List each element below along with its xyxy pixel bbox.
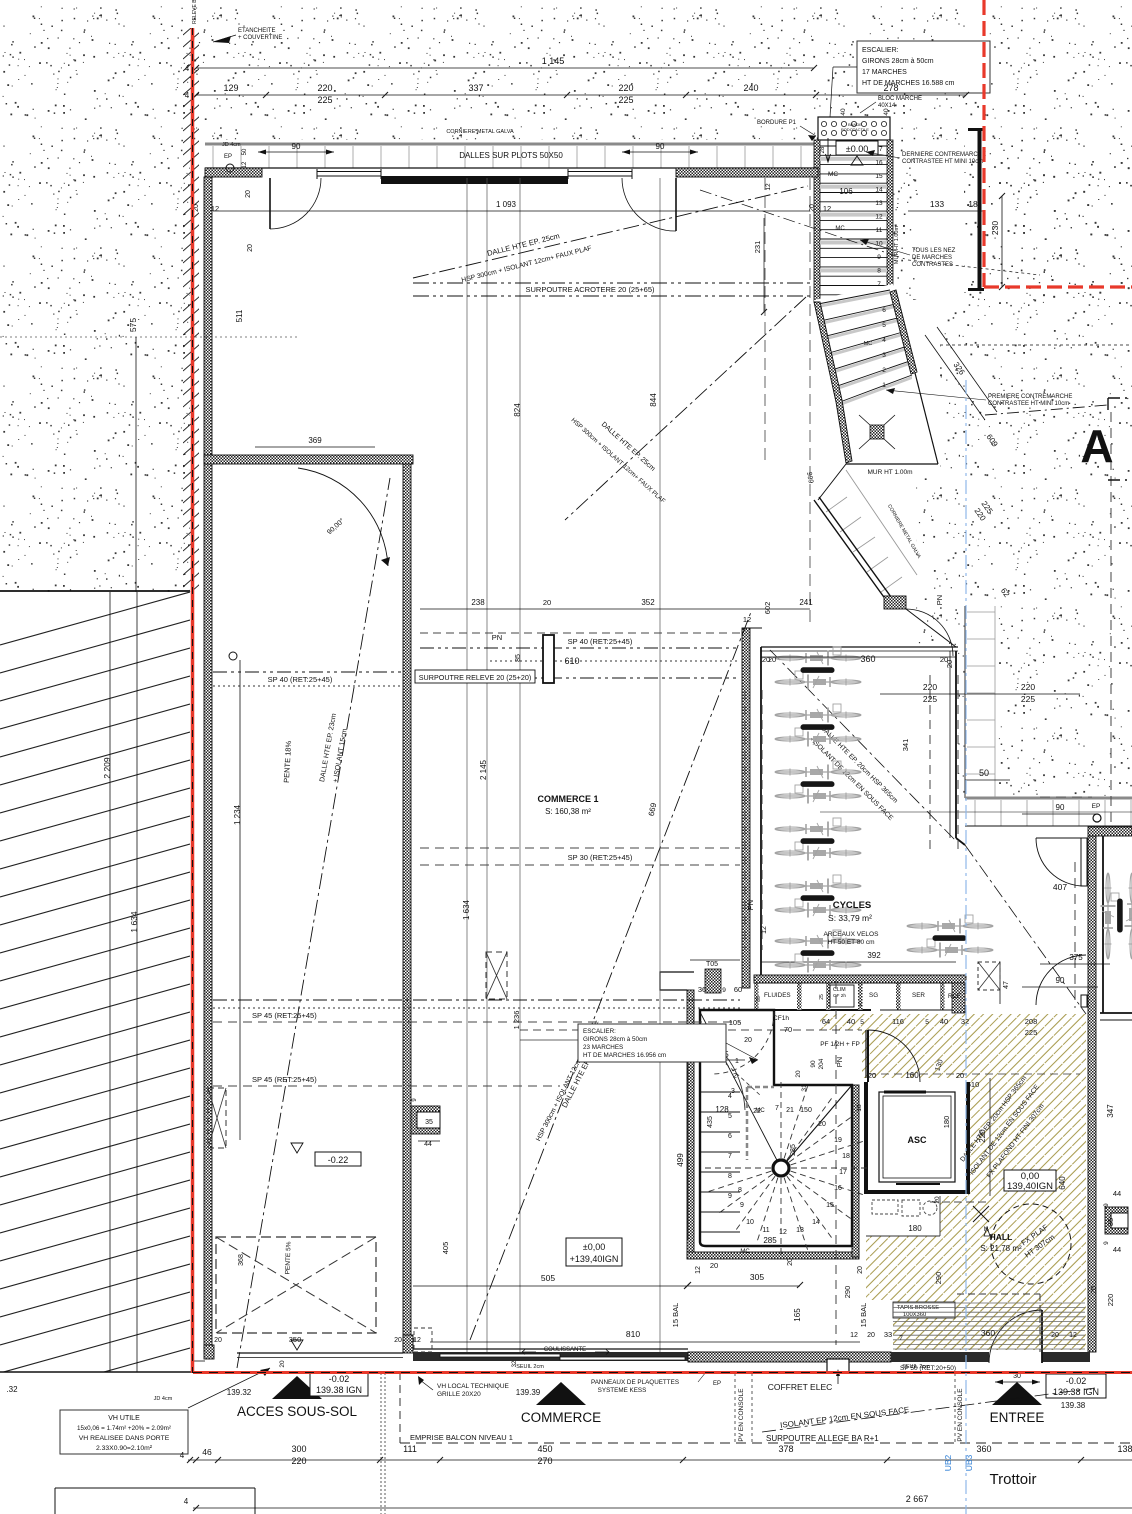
svg-text:1 634: 1 634 [129,911,139,933]
svg-text:12: 12 [695,1266,702,1274]
svg-text:499: 499 [676,1153,685,1167]
svg-text:220: 220 [978,1129,987,1143]
svg-text:3: 3 [882,352,886,359]
svg-text:208: 208 [1025,1017,1038,1026]
svg-text:9: 9 [722,987,726,994]
svg-text:CONTRASTEE HT MINI 10cm: CONTRASTEE HT MINI 10cm [988,401,1069,407]
svg-text:ARCEAUX VELOS: ARCEAUX VELOS [824,931,880,938]
svg-text:-0.22: -0.22 [328,1155,349,1165]
svg-text:9: 9 [740,1202,744,1209]
svg-text:4: 4 [185,91,190,100]
svg-text:12: 12 [761,926,768,934]
svg-text:20: 20 [245,190,252,198]
svg-text:MC: MC [755,1108,765,1114]
svg-text:JD 4cm: JD 4cm [154,1396,173,1402]
svg-text:SURPOUTRE RELEVE 20 (25+20): SURPOUTRE RELEVE 20 (25+20) [419,673,531,682]
svg-text:278: 278 [883,83,898,93]
svg-text:602: 602 [763,602,772,615]
svg-text:PN: PN [935,595,944,605]
svg-text:1 634: 1 634 [462,899,471,920]
svg-text:40X14: 40X14 [878,103,896,109]
svg-text:Trottoir: Trottoir [990,1471,1037,1488]
svg-text:90: 90 [656,142,665,151]
svg-text:220: 220 [1106,1294,1115,1307]
svg-text:220: 220 [618,83,633,93]
svg-text:241: 241 [799,598,813,607]
svg-text:305: 305 [750,1272,764,1282]
svg-text:31: 31 [801,1084,808,1092]
svg-text:CONTRASTEE HT MINI 10cm: CONTRASTEE HT MINI 10cm [902,159,983,165]
svg-text:20: 20 [787,1258,794,1266]
svg-text:2 209: 2 209 [102,757,112,779]
svg-text:225: 225 [618,95,633,105]
svg-text:CYCLES: CYCLES [833,900,872,911]
svg-text:44: 44 [1113,1245,1121,1254]
svg-text:20: 20 [214,1337,222,1344]
svg-text:20: 20 [744,1037,752,1044]
svg-text:378: 378 [778,1444,793,1454]
svg-text:15 BAL: 15 BAL [859,1303,868,1328]
svg-text:ASC: ASC [907,1135,927,1145]
svg-text:1: 1 [882,382,886,389]
svg-text:70: 70 [784,1025,792,1034]
svg-text:JD 4cm: JD 4cm [222,142,241,148]
svg-text:220: 220 [1021,682,1035,692]
svg-text:.32: .32 [6,1385,18,1394]
svg-text:12: 12 [765,183,772,191]
svg-text:HT 50 ET 80 cm: HT 50 ET 80 cm [827,939,874,946]
svg-text:270: 270 [537,1456,552,1466]
svg-text:9: 9 [1103,1203,1110,1207]
svg-text:285: 285 [790,1144,797,1156]
svg-text:1: 1 [735,1058,739,1065]
svg-text:5: 5 [860,1019,864,1026]
svg-text:8: 8 [738,1187,742,1194]
svg-text:COMMERCE: COMMERCE [521,1410,601,1425]
svg-text:9: 9 [728,1193,732,1200]
svg-text:ACCES SOUS-SOL: ACCES SOUS-SOL [237,1404,358,1419]
svg-text:7: 7 [899,1335,903,1342]
svg-text:21: 21 [786,1107,794,1114]
svg-text:HT DE MARCHES 16.588 cm: HT DE MARCHES 16.588 cm [862,80,955,87]
svg-text:±0.00: ±0.00 [846,144,868,154]
svg-text:ESCALIER:: ESCALIER: [583,1028,616,1035]
svg-text:220: 220 [923,682,937,692]
svg-text:360: 360 [981,1328,995,1338]
svg-text:139.38 IGN: 139.38 IGN [316,1385,362,1395]
svg-text:4: 4 [185,64,190,73]
svg-text:20: 20 [945,660,954,668]
svg-text:GIRONS 28cm à 50cm: GIRONS 28cm à 50cm [862,58,934,65]
svg-text:360: 360 [860,654,875,664]
svg-text:44: 44 [424,1141,432,1148]
svg-text:12: 12 [1069,1332,1077,1339]
svg-text:ENTREE: ENTREE [990,1410,1045,1425]
svg-text:+ COUVERTINE: + COUVERTINE [238,35,282,41]
svg-text:392: 392 [867,951,881,960]
svg-text:225: 225 [923,694,937,704]
svg-text:1 093: 1 093 [496,200,517,209]
svg-text:-0.02: -0.02 [329,1374,350,1384]
svg-text:810: 810 [626,1329,640,1339]
svg-text:-0.02: -0.02 [1066,1376,1087,1386]
svg-text:GIRONS 28cm à 50cm: GIRONS 28cm à 50cm [583,1036,647,1043]
svg-text:CF 2h: CF 2h [833,993,846,999]
svg-text:PV EN CONSOLE: PV EN CONSOLE [957,1388,964,1442]
svg-text:16: 16 [834,1185,842,1192]
svg-text:SEUIL 2cm: SEUIL 2cm [516,1364,544,1370]
svg-text:231: 231 [753,241,762,254]
svg-text:35: 35 [756,996,762,1002]
svg-text:40: 40 [883,108,890,116]
svg-text:7: 7 [775,1105,779,1112]
svg-text:8: 8 [728,1173,732,1180]
svg-text:VH LOCAL TECHNIQUE: VH LOCAL TECHNIQUE [437,1383,510,1390]
svg-text:PREMIERE CONTREMARCHE: PREMIERE CONTREMARCHE [988,394,1072,400]
svg-text:SP 45 (RET:25+45): SP 45 (RET:25+45) [252,1075,317,1084]
svg-text:MC: MC [864,341,873,347]
svg-text:2.33X0.90=2.10m²: 2.33X0.90=2.10m² [96,1445,153,1452]
svg-text:240: 240 [743,83,758,93]
svg-text:PF 1/2H + FP: PF 1/2H + FP [820,1041,860,1048]
svg-text:20: 20 [956,1071,964,1080]
svg-text:139.39: 139.39 [516,1388,541,1397]
svg-text:SURPOUTRE ACROTERE 20 (25+65): SURPOUTRE ACROTERE 20 (25+65) [526,285,656,294]
svg-text:PODOTACTILE: PODOTACTILE [841,127,869,132]
svg-text:RCE: RCE [948,994,961,1000]
svg-text:S: 21,78 m²: S: 21,78 m² [980,1244,1022,1253]
svg-text:VH REALISEE DANS PORTE: VH REALISEE DANS PORTE [79,1435,170,1442]
svg-text:±0,00: ±0,00 [583,1242,605,1252]
svg-text:225: 225 [317,95,332,105]
svg-text:7: 7 [728,1153,732,1160]
svg-text:MC: MC [828,171,838,178]
svg-text:18: 18 [856,1104,863,1112]
svg-text:SER: SER [912,992,925,999]
svg-text:90: 90 [1056,976,1065,985]
svg-text:17 MARCHES: 17 MARCHES [862,69,907,76]
svg-text:20: 20 [868,1071,876,1080]
svg-text:32: 32 [961,1017,969,1026]
svg-text:150: 150 [800,1107,812,1114]
svg-text:139.38: 139.38 [1061,1401,1086,1410]
svg-text:13: 13 [875,200,883,207]
svg-text:40: 40 [847,1017,855,1026]
svg-text:450: 450 [537,1444,552,1454]
svg-text:20: 20 [795,1070,802,1078]
svg-text:15: 15 [826,1202,834,1209]
svg-text:133: 133 [930,199,944,209]
svg-text:8: 8 [877,268,881,275]
svg-text:139.32: 139.32 [227,1388,252,1397]
svg-text:9: 9 [877,254,881,261]
svg-text:SURPOUTRE ALLEGE BA R+1: SURPOUTRE ALLEGE BA R+1 [766,1434,879,1443]
svg-text:375: 375 [1069,953,1083,962]
svg-text:105: 105 [729,1018,742,1027]
svg-text:SP 30 (RET:25+45): SP 30 (RET:25+45) [568,853,633,862]
svg-text:824: 824 [513,403,522,417]
svg-text:640: 640 [1058,1176,1067,1190]
svg-text:UB2: UB2 [943,1454,953,1471]
svg-text:20: 20 [818,1121,826,1128]
svg-text:SP 40 (RET:25+45): SP 40 (RET:25+45) [268,675,333,684]
svg-text:PV EN CONSOLE: PV EN CONSOLE [738,1388,745,1442]
svg-text:90: 90 [292,142,301,151]
svg-text:HALL: HALL [990,1232,1013,1242]
svg-text:20: 20 [279,1360,286,1368]
svg-text:BLOC MARCHE: BLOC MARCHE [878,96,922,102]
svg-text:160: 160 [905,1071,919,1080]
svg-text:25: 25 [819,994,825,1000]
svg-text:MUR HT 1.00m: MUR HT 1.00m [894,226,900,265]
svg-text:405: 405 [441,1242,450,1255]
svg-text:13: 13 [796,1227,804,1234]
svg-text:46: 46 [202,1447,212,1457]
svg-text:12: 12 [850,1332,858,1339]
svg-text:165: 165 [793,1308,802,1322]
svg-text:PN: PN [835,1057,844,1067]
svg-text:20: 20 [768,655,776,664]
svg-text:FLUIDES: FLUIDES [764,992,791,999]
svg-text:285: 285 [763,1236,777,1245]
svg-text:19: 19 [834,1137,842,1144]
svg-text:18: 18 [842,1153,850,1160]
svg-text:3: 3 [731,1088,735,1095]
svg-text:5: 5 [728,1113,732,1120]
svg-text:EP: EP [1092,803,1101,810]
svg-text:16: 16 [875,160,883,167]
svg-text:220: 220 [317,83,332,93]
svg-text:GRILLE 20X20: GRILLE 20X20 [437,1391,481,1398]
svg-text:12: 12 [779,1229,787,1236]
svg-text:15 BAL: 15 BAL [671,1303,680,1328]
svg-text:85: 85 [515,654,522,662]
svg-text:6: 6 [728,1133,732,1140]
svg-text:10: 10 [858,1001,864,1007]
svg-text:230: 230 [990,221,1000,235]
svg-text:COMMERCE 1: COMMERCE 1 [537,794,598,804]
svg-text:90: 90 [1056,803,1065,812]
svg-text:116: 116 [892,1017,904,1026]
svg-text:44: 44 [1113,1189,1121,1198]
svg-text:11: 11 [762,1227,769,1234]
svg-text:EMPRISE BALCON NIVEAU 1: EMPRISE BALCON NIVEAU 1 [410,1433,513,1442]
svg-text:HT DE MARCHES 16.956 cm: HT DE MARCHES 16.956 cm [583,1052,666,1059]
svg-text:610: 610 [564,656,579,666]
svg-text:50: 50 [979,768,989,778]
svg-text:20: 20 [1091,1286,1098,1294]
svg-text:575: 575 [128,318,138,332]
svg-text:VH UTILE: VH UTILE [108,1415,140,1422]
svg-text:DE MARCHES: DE MARCHES [912,255,952,261]
svg-text:EP: EP [224,154,232,160]
svg-text:35: 35 [425,1119,433,1126]
svg-text:COFFRET ELEC: COFFRET ELEC [768,1382,833,1392]
svg-text:30: 30 [1013,1373,1021,1380]
svg-text:106: 106 [839,187,853,196]
svg-text:SG: SG [869,992,878,999]
svg-text:1 145: 1 145 [542,56,565,66]
svg-text:505: 505 [541,1273,555,1283]
svg-text:MC: MC [835,226,845,232]
svg-text:40: 40 [940,1017,948,1026]
svg-text:12: 12 [875,214,883,221]
svg-text:36: 36 [698,985,706,994]
svg-text:47: 47 [1003,981,1010,989]
svg-text:4: 4 [882,337,886,344]
svg-text:10: 10 [746,1219,754,1226]
svg-text:14: 14 [875,187,883,194]
svg-text:347: 347 [1106,1104,1115,1118]
svg-text:844: 844 [649,393,658,407]
svg-text:368: 368 [238,1254,245,1266]
svg-text:341: 341 [901,739,910,752]
svg-text:A: A [1080,420,1113,472]
svg-text:ESCALIER:: ESCALIER: [862,47,899,54]
svg-text:18: 18 [968,199,978,209]
svg-text:SP 45 (RET:25+45): SP 45 (RET:25+45) [252,1011,317,1020]
svg-text:28: 28 [820,146,826,153]
svg-text:180: 180 [942,1116,951,1129]
svg-text:5: 5 [925,1019,929,1026]
svg-text:5: 5 [882,322,886,329]
svg-text:DALLES SUR PLOTS 50X50: DALLES SUR PLOTS 50X50 [459,151,563,160]
svg-text:1 236: 1 236 [512,1011,521,1030]
svg-text:RELEVE BE: RELEVE BE [192,0,198,24]
svg-text:290: 290 [934,1272,943,1285]
svg-text:12: 12 [211,204,219,213]
svg-text:4: 4 [184,1497,189,1506]
svg-text:64: 64 [822,1017,830,1026]
svg-text:PENTE 5%: PENTE 5% [284,1241,292,1274]
svg-text:PN: PN [746,900,755,910]
svg-text:225: 225 [1025,1028,1038,1037]
svg-text:50: 50 [242,148,248,155]
svg-text:2: 2 [882,367,886,374]
svg-text:510: 510 [967,1080,980,1089]
svg-text:350: 350 [289,1335,302,1344]
svg-text:290: 290 [843,1286,852,1299]
svg-text:12: 12 [242,161,248,168]
svg-text:12: 12 [823,204,831,213]
svg-text:15: 15 [875,173,883,180]
svg-text:PANNEAUX DE PLAQUETTES: PANNEAUX DE PLAQUETTES [591,1379,679,1386]
svg-text:15x0,06 = 1.74m² +20% = 2.09m²: 15x0,06 = 1.74m² +20% = 2.09m² [77,1425,171,1432]
svg-text:129: 129 [223,83,238,93]
svg-text:220: 220 [291,1456,306,1466]
svg-text:COULISSANTE: COULISSANTE [544,1347,586,1353]
svg-text:2 145: 2 145 [479,759,488,780]
svg-text:SP 50 (RET:20+50): SP 50 (RET:20+50) [900,1365,956,1372]
svg-text:MC: MC [740,1249,750,1255]
svg-text:CF1h: CF1h [773,1015,789,1022]
svg-text:360: 360 [976,1444,991,1454]
svg-text:33: 33 [884,1330,892,1339]
svg-text:20: 20 [809,204,816,212]
svg-text:138: 138 [1117,1444,1132,1454]
svg-text:2 667: 2 667 [906,1494,929,1504]
svg-text:40: 40 [840,108,847,116]
svg-text:TOUS LES NEZ: TOUS LES NEZ [912,248,956,254]
svg-text:20: 20 [247,244,254,252]
svg-text:139,40IGN: 139,40IGN [1007,1181,1053,1192]
svg-text:35: 35 [1106,1218,1115,1226]
svg-text:20: 20 [710,1261,718,1270]
svg-text:180: 180 [908,1224,922,1233]
svg-text:1 234: 1 234 [233,804,242,825]
svg-text:6: 6 [882,307,886,314]
svg-text:11: 11 [876,227,883,234]
svg-text:BORDURE P1: BORDURE P1 [757,120,797,126]
svg-text:369: 369 [308,436,322,445]
svg-text:20: 20 [867,1332,875,1339]
svg-text:225: 225 [1021,694,1035,704]
svg-text:9: 9 [1103,1241,1110,1245]
svg-text:14: 14 [812,1219,820,1226]
svg-text:12: 12 [743,615,751,624]
svg-text:SP 40 (RET:25+45): SP 40 (RET:25+45) [568,637,633,646]
svg-text:S: 160,38 m²: S: 160,38 m² [545,807,591,816]
svg-text:20: 20 [543,598,551,607]
svg-text:20: 20 [394,1337,402,1344]
svg-text:17: 17 [839,1169,847,1176]
svg-text:T05: T05 [706,961,718,968]
svg-text:20: 20 [857,1266,864,1274]
svg-text:CLIM: CLIM [833,987,846,993]
svg-text:111: 111 [403,1444,417,1454]
svg-text:SYSTEME KESS: SYSTEME KESS [598,1387,647,1394]
svg-text:ETANCHEITE: ETANCHEITE [238,28,276,34]
svg-text:DERNIERE CONTREMARCHE: DERNIERE CONTREMARCHE [902,152,986,158]
svg-text:204: 204 [818,1058,825,1069]
svg-text:238: 238 [471,598,485,607]
svg-text:23 MARCHES: 23 MARCHES [583,1044,623,1051]
svg-text:337: 337 [468,83,483,93]
svg-text:60: 60 [734,985,742,994]
svg-text:MUR HT 1.00m: MUR HT 1.00m [867,469,912,476]
svg-text:435: 435 [707,1116,714,1128]
svg-text:EP: EP [713,1381,721,1387]
svg-text:PN: PN [492,633,502,642]
svg-text:300: 300 [291,1444,306,1454]
svg-text:20: 20 [934,1196,941,1204]
svg-text:511: 511 [235,309,244,322]
svg-text:90: 90 [810,1060,817,1068]
svg-text:407: 407 [1053,882,1067,892]
svg-text:4: 4 [180,1451,185,1460]
svg-text:352: 352 [641,598,655,607]
svg-text:20: 20 [1051,1332,1059,1339]
svg-text:+139,40IGN: +139,40IGN [570,1254,619,1264]
svg-text:128: 128 [715,1105,729,1114]
svg-text:S: 33,79 m²: S: 33,79 m² [828,913,872,923]
svg-text:CORNIERE METAL GALVA: CORNIERE METAL GALVA [446,129,514,135]
